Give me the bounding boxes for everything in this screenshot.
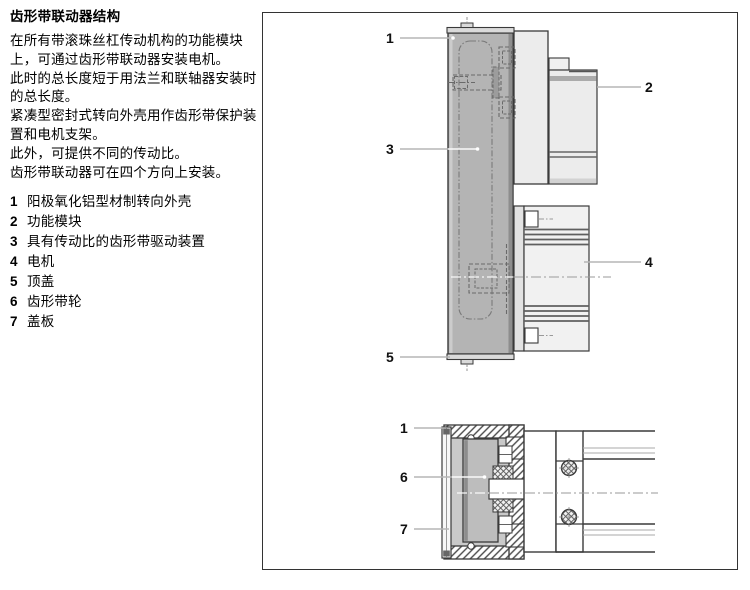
legend-item-label: 阳极氧化铝型材制转向外壳 (27, 192, 191, 212)
legend-item-number: 3 (10, 232, 27, 252)
coupling-cross-section (442, 425, 526, 559)
callout-belt-drive: 3 (386, 141, 400, 157)
legend-item-label: 盖板 (27, 312, 54, 332)
legend-item: 7 盖板 (10, 312, 262, 332)
paragraph-line: 此时的总长度短于用法兰和联轴器安装时 (10, 70, 262, 89)
module-cross-section (524, 431, 655, 552)
paragraph-line: 的总长度。 (10, 88, 262, 107)
legend-item: 5 顶盖 (10, 272, 262, 292)
figure-frame: 1 3 5 2 4 1 6 7 (262, 12, 738, 570)
legend-item-label: 具有传动比的齿形带驱动装置 (27, 232, 205, 252)
paragraph-line: 紧凑型密封式转向外壳用作齿形带保护装 (10, 107, 262, 126)
legend-item-label: 功能模块 (27, 212, 82, 232)
technical-drawing (263, 13, 736, 568)
reversing-housing-side (447, 17, 515, 371)
legend-item-label: 电机 (27, 252, 54, 272)
legend-item-number: 7 (10, 312, 27, 332)
description-paragraph: 在所有带滚珠丝杠传动机构的功能模块 上，可通过齿形带联动器安装电机。 此时的总长… (10, 32, 262, 182)
legend-item: 2 功能模块 (10, 212, 262, 232)
legend-list: 1 阳极氧化铝型材制转向外壳 2 功能模块 3 具有传动比的齿形带驱动装置 4 … (10, 192, 262, 332)
section-title: 齿形带联动器结构 (10, 7, 262, 27)
paragraph-line: 齿形带联动器可在四个方向上安装。 (10, 164, 262, 183)
motor-section (514, 206, 589, 351)
legend-item-label: 齿形带轮 (27, 292, 82, 312)
legend-item-number: 1 (10, 192, 27, 212)
legend-item: 1 阳极氧化铝型材制转向外壳 (10, 192, 262, 212)
description-panel: 齿形带联动器结构 在所有带滚珠丝杠传动机构的功能模块 上，可通过齿形带联动器安装… (10, 7, 262, 332)
legend-item-number: 2 (10, 212, 27, 232)
legend-item: 4 电机 (10, 252, 262, 272)
paragraph-line: 上，可通过齿形带联动器安装电机。 (10, 51, 262, 70)
legend-item: 6 齿形带轮 (10, 292, 262, 312)
callout-function-module: 2 (645, 79, 659, 95)
legend-item: 3 具有传动比的齿形带驱动装置 (10, 232, 262, 252)
paragraph-line: 此外，可提供不同的传动比。 (10, 145, 262, 164)
callout-housing-top: 1 (386, 30, 400, 46)
legend-item-number: 5 (10, 272, 27, 292)
callout-top-cover: 5 (386, 349, 400, 365)
paragraph-line: 置和电机支架。 (10, 126, 262, 145)
callout-cover-plate: 7 (400, 521, 414, 537)
legend-item-label: 顶盖 (27, 272, 54, 292)
legend-item-number: 4 (10, 252, 27, 272)
callout-motor: 4 (645, 254, 659, 270)
callout-housing-bottom: 1 (400, 420, 414, 436)
legend-item-number: 6 (10, 292, 27, 312)
paragraph-line: 在所有带滚珠丝杠传动机构的功能模块 (10, 32, 262, 51)
callout-belt-pulley: 6 (400, 469, 414, 485)
function-module-section (514, 31, 597, 184)
